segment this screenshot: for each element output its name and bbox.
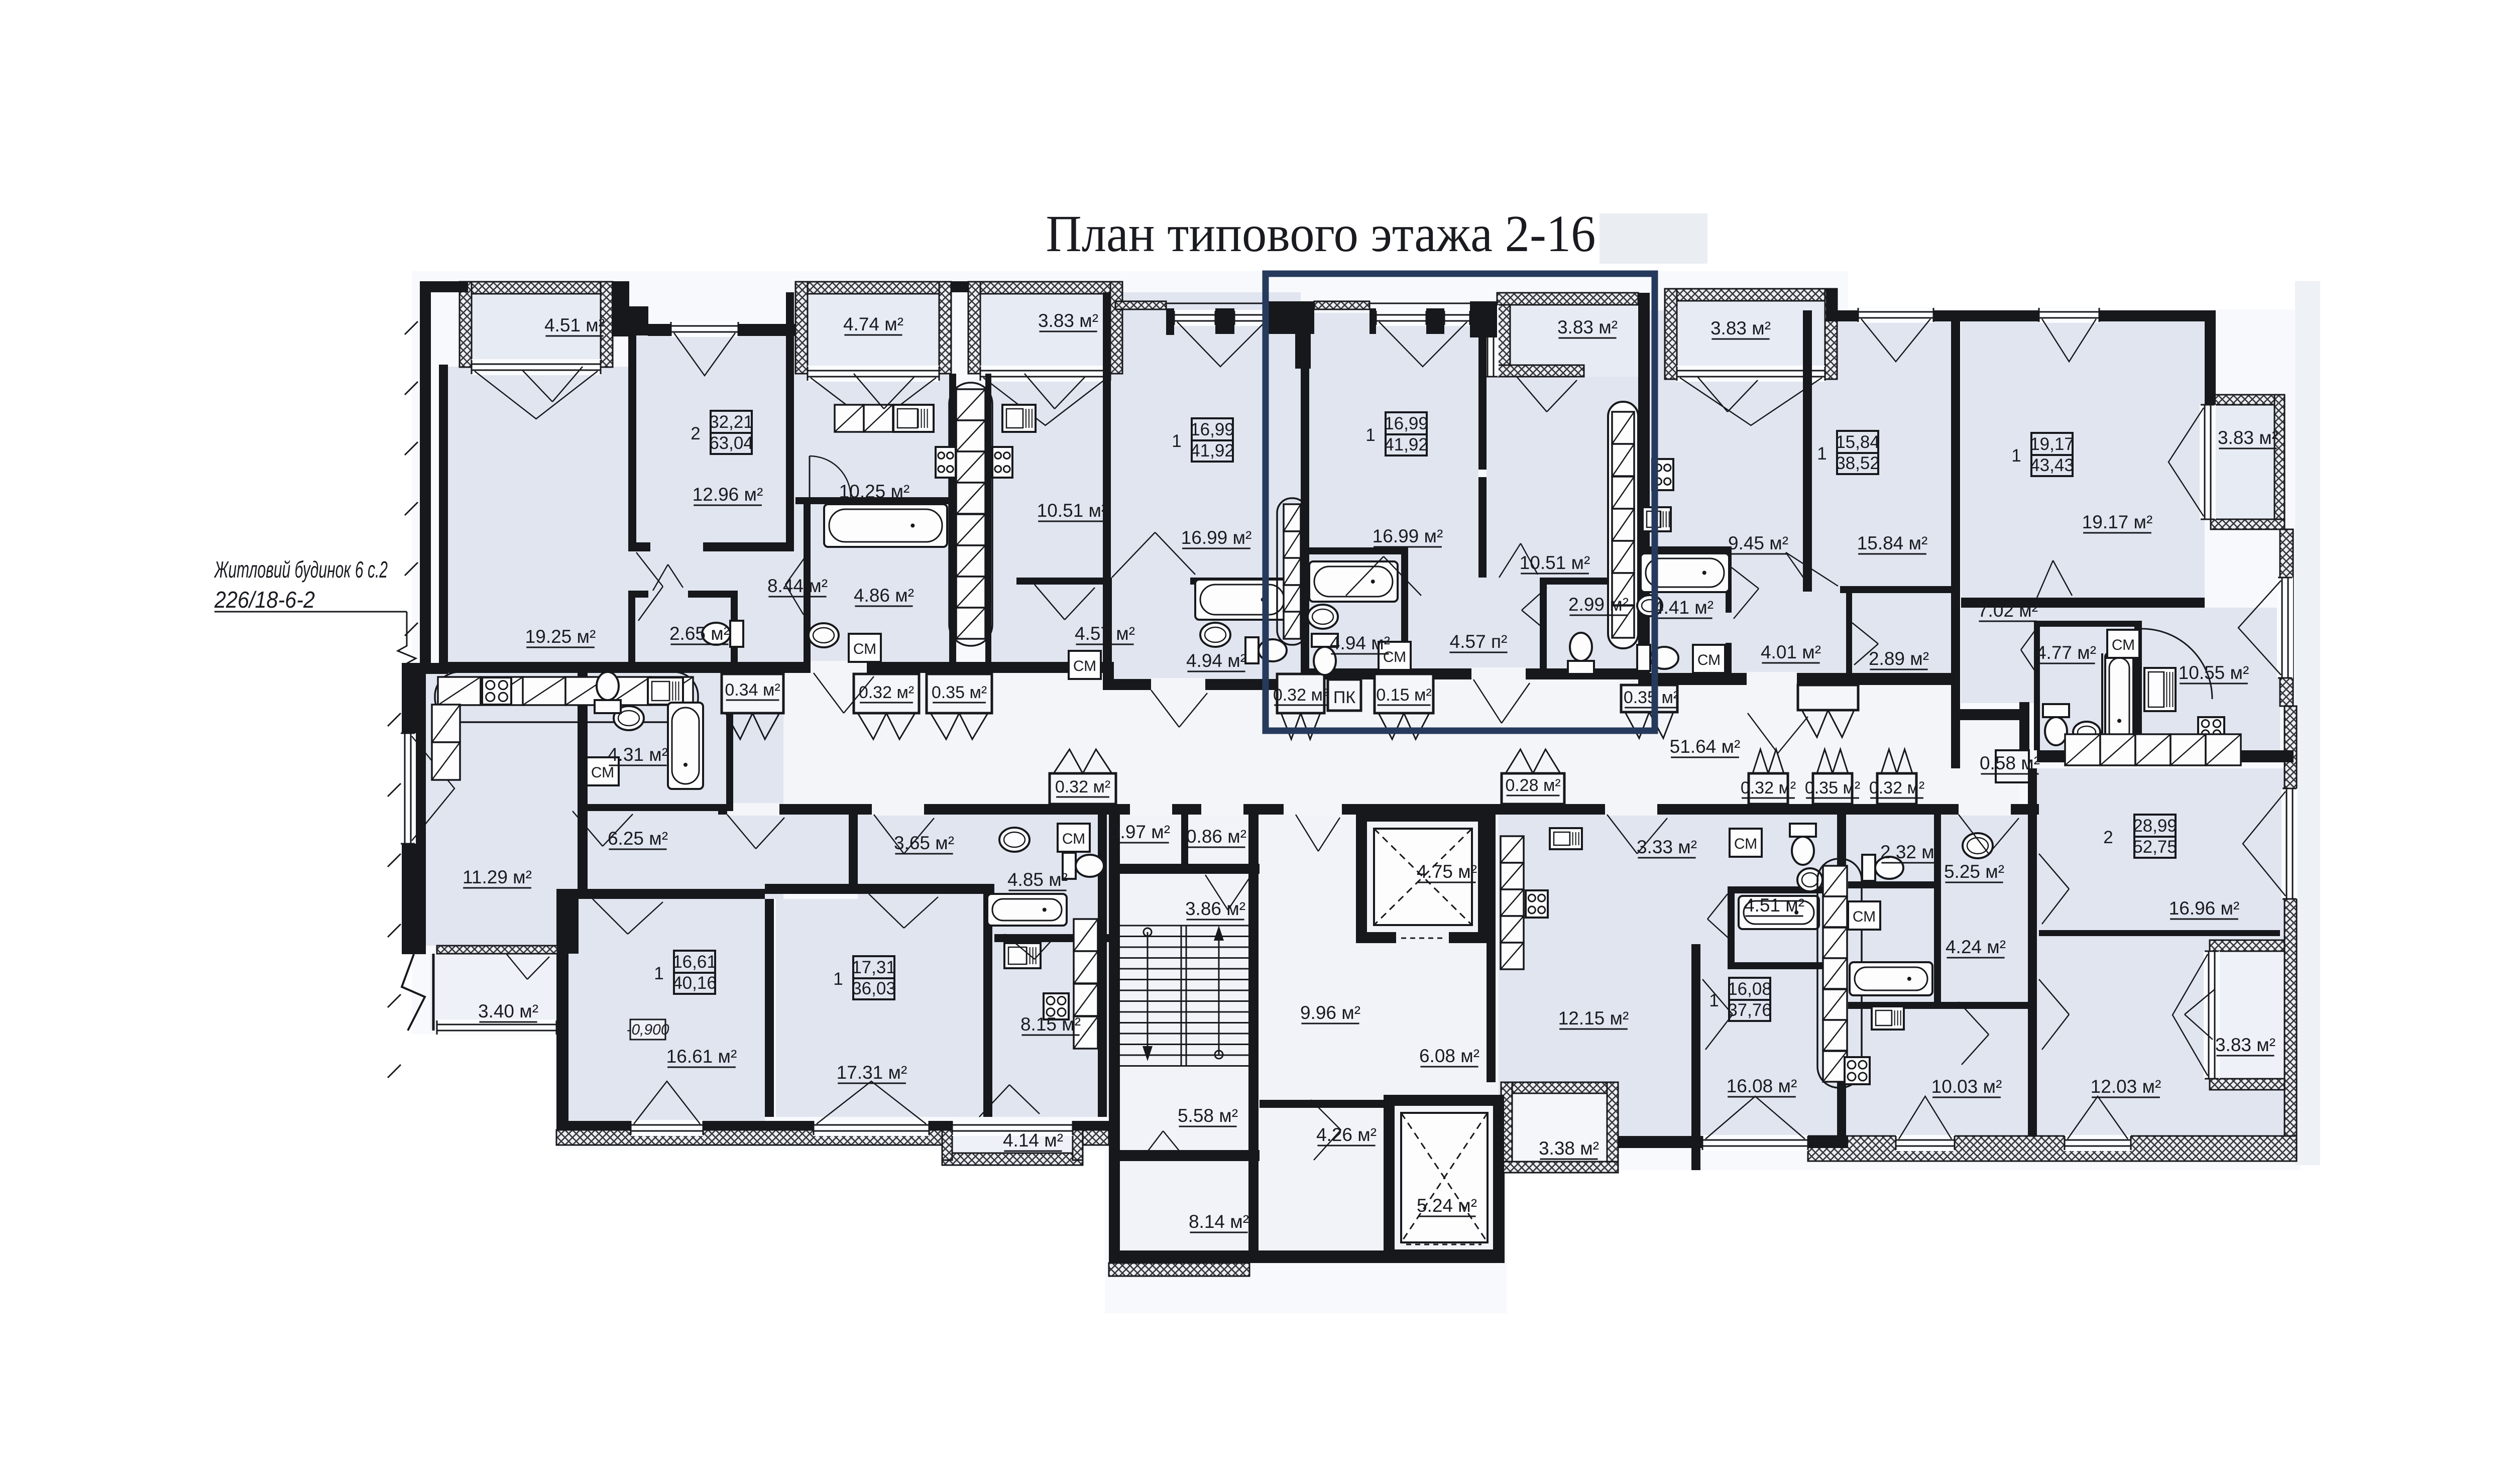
svg-text:16,61: 16,61	[672, 952, 717, 972]
svg-text:10.03 м²: 10.03 м²	[1931, 1076, 2002, 1097]
svg-text:6.25 м²: 6.25 м²	[608, 828, 668, 849]
svg-text:226/18-6-2: 226/18-6-2	[214, 587, 315, 613]
svg-text:0.58 м²: 0.58 м²	[1980, 753, 2040, 773]
svg-text:5.24 м²: 5.24 м²	[1417, 1195, 1477, 1216]
svg-text:16,99: 16,99	[1190, 420, 1234, 439]
svg-text:СМ: СМ	[2112, 637, 2135, 653]
svg-text:19,17: 19,17	[2030, 434, 2074, 454]
svg-text:3.86 м²: 3.86 м²	[1185, 898, 1245, 919]
svg-text:4.86 м²: 4.86 м²	[854, 585, 914, 606]
svg-text:-0,900: -0,900	[626, 1021, 669, 1038]
svg-text:1: 1	[1817, 444, 1827, 464]
svg-text:0.28 м²: 0.28 м²	[1505, 776, 1560, 795]
svg-text:1: 1	[1709, 991, 1719, 1010]
svg-text:16.08 м²: 16.08 м²	[1727, 1076, 1797, 1096]
svg-text:16,99: 16,99	[1384, 414, 1428, 433]
svg-text:63,04: 63,04	[709, 433, 753, 453]
svg-text:0.35 м²: 0.35 м²	[932, 683, 987, 702]
svg-text:1: 1	[1365, 425, 1375, 445]
svg-text:ПК: ПК	[1333, 688, 1355, 707]
svg-text:СМ: СМ	[1734, 836, 1757, 852]
svg-text:3.65 м²: 3.65 м²	[894, 833, 954, 853]
svg-text:36,03: 36,03	[852, 979, 896, 998]
svg-text:4.41 м²: 4.41 м²	[1653, 597, 1714, 618]
svg-text:8.15 м²: 8.15 м²	[1020, 1014, 1081, 1035]
svg-text:4.14 м²: 4.14 м²	[1003, 1130, 1063, 1151]
svg-text:16.99 м²: 16.99 м²	[1181, 527, 1252, 548]
svg-text:7.02 м²: 7.02 м²	[1978, 600, 2038, 621]
svg-text:0.32 м²: 0.32 м²	[859, 683, 914, 702]
svg-text:9.96 м²: 9.96 м²	[1300, 1002, 1360, 1023]
svg-text:0.97 м²: 0.97 м²	[1110, 822, 1170, 842]
svg-text:План типового этажа 2-16: План типового этажа 2-16	[1046, 205, 1596, 263]
svg-text:1: 1	[833, 969, 843, 989]
svg-text:17.31 м²: 17.31 м²	[837, 1062, 907, 1083]
svg-text:3.40 м²: 3.40 м²	[478, 1001, 538, 1021]
svg-text:41,92: 41,92	[1190, 441, 1234, 461]
svg-text:4.94 м²: 4.94 м²	[1186, 650, 1246, 671]
svg-text:0.15 м²: 0.15 м²	[1376, 686, 1431, 705]
svg-text:СМ: СМ	[1073, 658, 1096, 674]
svg-text:2.99 м²: 2.99 м²	[1568, 594, 1629, 615]
svg-text:4.26 м²: 4.26 м²	[1316, 1124, 1377, 1145]
svg-text:3.83 м²: 3.83 м²	[2218, 427, 2278, 448]
svg-text:0.34 м²: 0.34 м²	[725, 680, 780, 700]
svg-text:СМ: СМ	[591, 764, 614, 781]
svg-text:4.31 м²: 4.31 м²	[608, 744, 668, 765]
svg-text:6.08 м²: 6.08 м²	[1419, 1046, 1479, 1066]
svg-text:1: 1	[2011, 446, 2021, 466]
svg-text:15,84: 15,84	[1836, 432, 1880, 452]
svg-text:3.83 м²: 3.83 м²	[2215, 1035, 2275, 1055]
svg-text:10.55 м²: 10.55 м²	[2179, 662, 2249, 683]
svg-text:37,76: 37,76	[1728, 1000, 1772, 1020]
svg-text:3.83 м²: 3.83 м²	[1557, 317, 1618, 337]
svg-text:5.58 м²: 5.58 м²	[1178, 1105, 1238, 1126]
svg-text:8.14 м²: 8.14 м²	[1189, 1211, 1249, 1232]
svg-text:41,92: 41,92	[1384, 435, 1428, 454]
svg-text:4.51 м²: 4.51 м²	[544, 315, 605, 335]
svg-text:3.38 м²: 3.38 м²	[1539, 1138, 1599, 1159]
svg-text:12.15 м²: 12.15 м²	[1558, 1008, 1629, 1029]
svg-text:СМ: СМ	[1697, 652, 1721, 668]
svg-text:0.32 м²: 0.32 м²	[1273, 686, 1328, 705]
svg-text:2.89 м²: 2.89 м²	[1869, 648, 1929, 669]
svg-text:СМ: СМ	[1853, 908, 1876, 925]
svg-text:3.83 м²: 3.83 м²	[1038, 310, 1098, 331]
svg-text:4.74 м²: 4.74 м²	[843, 314, 903, 334]
svg-text:19.17 м²: 19.17 м²	[2082, 512, 2153, 532]
svg-text:0.32 м²: 0.32 м²	[1869, 778, 1924, 797]
svg-text:16.99 м²: 16.99 м²	[1373, 526, 1443, 546]
svg-text:Житловий будинок 6 с.2: Житловий будинок 6 с.2	[214, 556, 388, 583]
svg-text:4.77 м²: 4.77 м²	[2036, 642, 2096, 663]
svg-text:0.35 м²: 0.35 м²	[1805, 778, 1860, 797]
svg-text:12.03 м²: 12.03 м²	[2091, 1076, 2161, 1097]
svg-text:5.25 м²: 5.25 м²	[1944, 861, 2004, 882]
svg-text:3.33 м²: 3.33 м²	[1637, 837, 1697, 857]
svg-text:32,21: 32,21	[709, 412, 753, 432]
svg-text:СМ: СМ	[1062, 831, 1085, 847]
svg-text:9.45 м²: 9.45 м²	[1728, 533, 1788, 553]
svg-text:40,16: 40,16	[672, 973, 717, 993]
svg-text:16.96 м²: 16.96 м²	[2169, 898, 2240, 919]
svg-text:4.01 м²: 4.01 м²	[1761, 642, 1821, 662]
svg-text:43,43: 43,43	[2030, 455, 2074, 475]
svg-text:0.32 м²: 0.32 м²	[1741, 778, 1796, 797]
svg-text:СМ: СМ	[853, 641, 876, 657]
svg-text:17,31: 17,31	[852, 958, 896, 977]
svg-text:4.94 м²: 4.94 м²	[1330, 633, 1390, 653]
svg-text:4.51 м²: 4.51 м²	[1744, 895, 1804, 916]
svg-text:16,08: 16,08	[1728, 979, 1772, 999]
svg-text:11.29 м²: 11.29 м²	[463, 867, 532, 887]
svg-text:2.65 м²: 2.65 м²	[669, 623, 730, 644]
svg-text:15.84 м²: 15.84 м²	[1857, 533, 1928, 553]
svg-text:4.24 м²: 4.24 м²	[1946, 937, 2006, 957]
svg-text:4.57 м²: 4.57 м²	[1075, 623, 1135, 644]
svg-text:2: 2	[691, 424, 700, 443]
svg-text:0.35 м²: 0.35 м²	[1624, 688, 1679, 707]
svg-text:12.96 м²: 12.96 м²	[693, 484, 763, 505]
svg-text:0.32 м²: 0.32 м²	[1055, 777, 1110, 796]
svg-text:19.25 м²: 19.25 м²	[525, 626, 596, 647]
svg-text:16.61 м²: 16.61 м²	[666, 1046, 737, 1067]
svg-text:2: 2	[2103, 828, 2113, 847]
svg-text:2.32 м²: 2.32 м²	[1880, 842, 1941, 862]
svg-text:0.86 м²: 0.86 м²	[1186, 826, 1246, 847]
svg-text:4.85 м²: 4.85 м²	[1007, 869, 1068, 890]
svg-text:10.25 м²: 10.25 м²	[839, 481, 910, 502]
svg-text:3.83 м²: 3.83 м²	[1710, 318, 1771, 338]
svg-text:52,75: 52,75	[2133, 837, 2177, 857]
svg-text:4.57 п²: 4.57 п²	[1450, 631, 1508, 652]
svg-text:1: 1	[654, 964, 663, 983]
svg-text:4.75 м²: 4.75 м²	[1417, 861, 1477, 882]
svg-text:51.64 м²: 51.64 м²	[1670, 736, 1741, 757]
svg-text:38,52: 38,52	[1836, 453, 1880, 473]
svg-text:10.51 м²: 10.51 м²	[1520, 552, 1590, 573]
svg-text:8.44 м²: 8.44 м²	[767, 576, 828, 596]
svg-text:10.51 м²: 10.51 м²	[1037, 500, 1108, 521]
svg-text:1: 1	[1172, 431, 1181, 451]
svg-text:28,99: 28,99	[2133, 816, 2177, 836]
